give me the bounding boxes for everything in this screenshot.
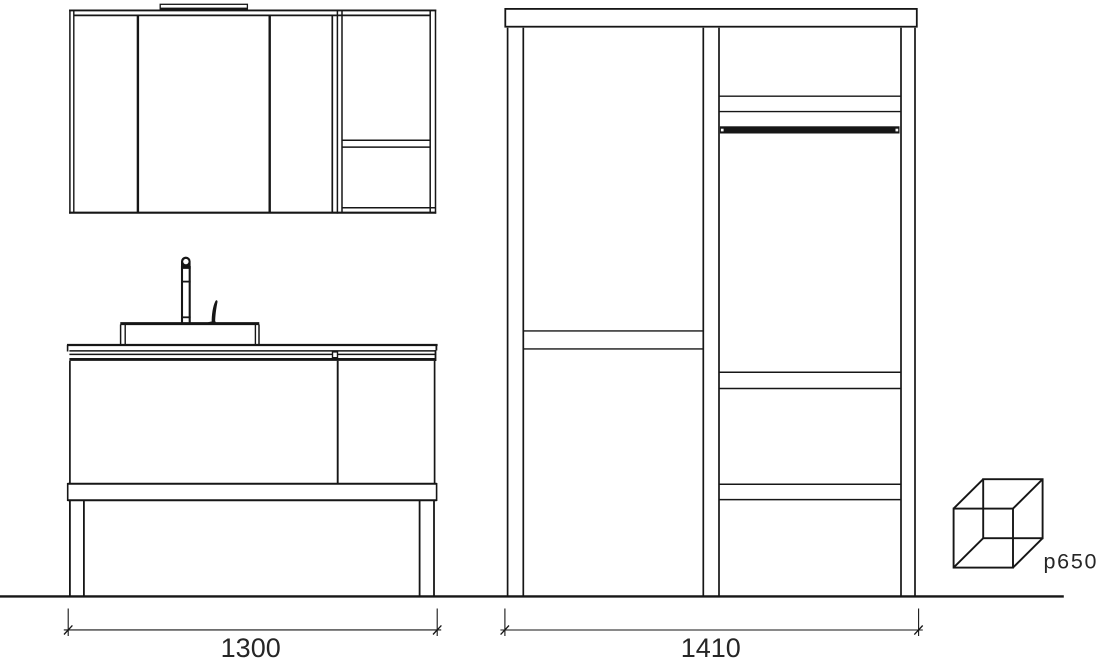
svg-text:p650: p650: [1044, 549, 1099, 573]
svg-text:1410: 1410: [681, 633, 741, 658]
svg-text:1300: 1300: [221, 633, 281, 658]
